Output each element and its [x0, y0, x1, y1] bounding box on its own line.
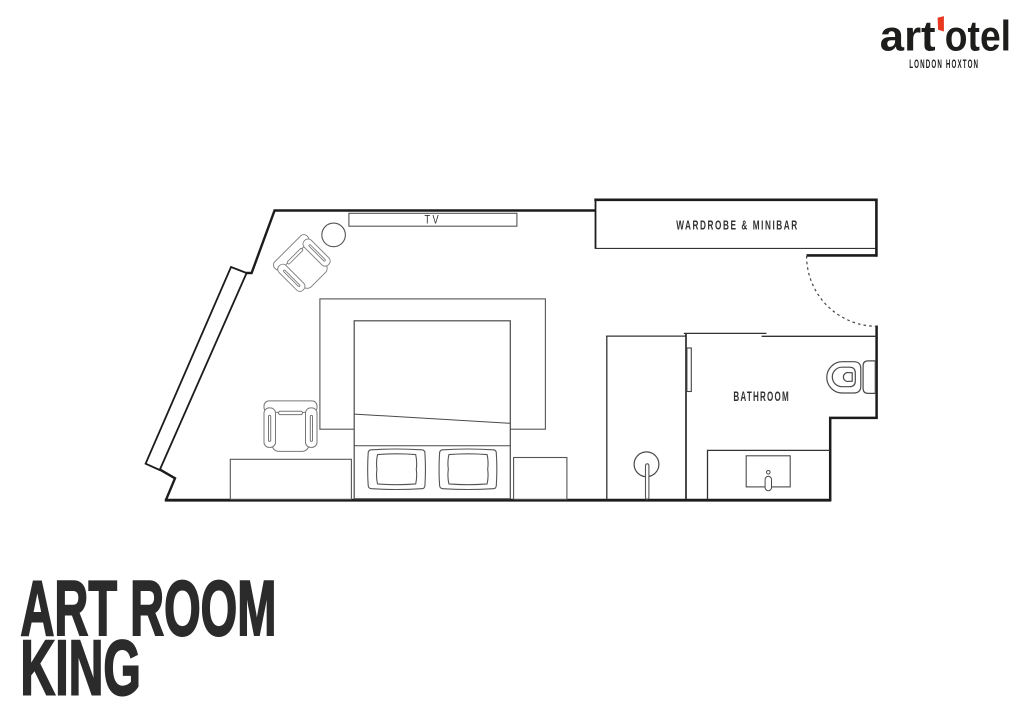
svg-text:WARDROBE & MINIBAR: WARDROBE & MINIBAR [676, 218, 799, 233]
svg-text:LONDON HOXTON: LONDON HOXTON [909, 57, 979, 71]
svg-text:BATHROOM: BATHROOM [733, 389, 790, 404]
svg-text:TV: TV [425, 215, 442, 227]
svg-text:otel: otel [945, 13, 1011, 60]
svg-text:art: art [880, 13, 936, 60]
svg-text:KING: KING [20, 623, 140, 711]
